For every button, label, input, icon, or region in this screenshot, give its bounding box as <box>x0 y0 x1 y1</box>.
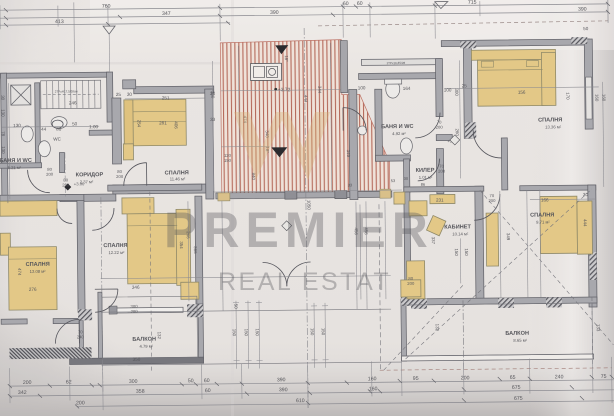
svg-text:200: 200 <box>23 380 32 386</box>
svg-text:260: 260 <box>455 128 460 136</box>
svg-text:1.00: 1.00 <box>89 124 98 129</box>
svg-text:200: 200 <box>62 182 70 187</box>
svg-text:200: 200 <box>438 169 446 174</box>
svg-text:33: 33 <box>210 117 216 122</box>
svg-text:150: 150 <box>224 158 232 163</box>
svg-text:150: 150 <box>464 248 469 256</box>
svg-text:КАБИНЕТ: КАБИНЕТ <box>444 224 471 230</box>
svg-text:REAL ESTAT: REAL ESTAT <box>218 268 391 296</box>
svg-text:9.71 м²: 9.71 м² <box>536 219 550 224</box>
svg-text:150: 150 <box>232 329 237 337</box>
svg-text:8.65 м²: 8.65 м² <box>513 338 527 343</box>
svg-text:132: 132 <box>435 324 440 332</box>
svg-text:160: 160 <box>594 94 599 102</box>
svg-text:300: 300 <box>129 379 138 385</box>
svg-text:276: 276 <box>29 287 37 292</box>
svg-text:62: 62 <box>66 379 72 385</box>
svg-text:25: 25 <box>116 92 122 97</box>
svg-text:344: 344 <box>317 86 322 94</box>
svg-text:50: 50 <box>583 26 589 31</box>
svg-text:246: 246 <box>69 100 77 105</box>
svg-text:150: 150 <box>454 248 459 256</box>
svg-text:11.46 м²: 11.46 м² <box>170 176 186 181</box>
svg-text:13.08 м²: 13.08 м² <box>30 269 47 274</box>
svg-text:133: 133 <box>596 324 601 332</box>
svg-text:25: 25 <box>462 83 468 88</box>
svg-text:1.01 м²: 1.01 м² <box>419 175 433 180</box>
svg-text:347: 347 <box>162 11 171 17</box>
svg-text:18°: 18° <box>284 55 289 62</box>
svg-text:200: 200 <box>461 375 470 381</box>
svg-text:150: 150 <box>321 328 326 336</box>
svg-text:44: 44 <box>41 127 47 132</box>
svg-text:240: 240 <box>555 374 564 380</box>
svg-text:251: 251 <box>162 95 170 100</box>
svg-text:150: 150 <box>255 329 260 337</box>
svg-text:30: 30 <box>0 95 5 100</box>
svg-text:200: 200 <box>488 198 496 203</box>
svg-text:390: 390 <box>270 10 279 16</box>
svg-text:300: 300 <box>210 91 215 99</box>
svg-text:150: 150 <box>310 328 315 336</box>
svg-text:254: 254 <box>137 120 142 128</box>
svg-text:390: 390 <box>578 7 587 13</box>
svg-text:350: 350 <box>133 357 141 362</box>
svg-text:358: 358 <box>136 389 145 395</box>
svg-text:675: 675 <box>514 396 523 402</box>
svg-text:80: 80 <box>56 127 62 132</box>
svg-text:4.92 м²: 4.92 м² <box>392 131 406 136</box>
svg-text:КОРИДОР: КОРИДОР <box>76 172 104 178</box>
svg-text:10.14 м²: 10.14 м² <box>452 231 469 236</box>
svg-text:100: 100 <box>358 85 366 90</box>
svg-text:342: 342 <box>18 390 27 396</box>
svg-text:444: 444 <box>303 95 308 103</box>
svg-text:СПАЛНЯ: СПАЛНЯ <box>538 117 562 123</box>
svg-text:474: 474 <box>17 268 22 276</box>
svg-text:30: 30 <box>583 192 589 197</box>
svg-text:КИЛЕР: КИЛЕР <box>416 168 435 174</box>
svg-text:1ТРх16,85/28: 1ТРх16,85/28 <box>386 61 405 65</box>
svg-text:60: 60 <box>343 1 349 7</box>
svg-text:12.22 м²: 12.22 м² <box>108 250 125 255</box>
svg-text:156: 156 <box>518 90 526 95</box>
svg-text:200: 200 <box>46 172 54 177</box>
svg-text:50: 50 <box>188 378 194 384</box>
svg-text:675: 675 <box>512 385 521 391</box>
svg-text:170: 170 <box>565 92 570 100</box>
svg-text:75: 75 <box>601 374 607 380</box>
svg-text:БАЛКОН: БАЛКОН <box>505 331 529 337</box>
svg-text:СПАЛНЯ: СПАЛНЯ <box>26 262 50 268</box>
svg-text:200: 200 <box>407 281 415 286</box>
svg-text:PREMIER: PREMIER <box>164 202 434 258</box>
svg-text:СПАЛНЯ: СПАЛНЯ <box>103 243 127 249</box>
svg-text:50: 50 <box>233 304 238 309</box>
svg-text:406: 406 <box>174 121 179 129</box>
svg-text:200: 200 <box>436 125 444 130</box>
svg-text:132: 132 <box>157 332 162 340</box>
svg-text:200: 200 <box>131 309 139 314</box>
svg-text:95: 95 <box>413 376 419 382</box>
svg-text:444: 444 <box>583 219 588 227</box>
svg-text:13.36 м²: 13.36 м² <box>545 124 562 129</box>
svg-text:130: 130 <box>0 109 5 117</box>
svg-text:349: 349 <box>506 233 511 241</box>
svg-text:+3.00: +3.00 <box>74 181 85 186</box>
svg-text:160: 160 <box>368 376 377 382</box>
svg-text:130: 130 <box>13 123 21 128</box>
svg-text:60: 60 <box>205 388 211 394</box>
svg-text:760: 760 <box>102 4 111 10</box>
svg-text:349: 349 <box>346 150 351 158</box>
svg-text:150: 150 <box>244 329 249 337</box>
svg-text:610: 610 <box>296 398 305 404</box>
svg-text:130: 130 <box>1 146 6 154</box>
svg-text:200: 200 <box>76 400 85 406</box>
svg-text:715: 715 <box>468 0 477 6</box>
svg-text:413: 413 <box>55 19 64 25</box>
svg-text:WC: WC <box>53 137 61 142</box>
svg-text:78: 78 <box>1 131 6 136</box>
svg-text:346: 346 <box>132 285 140 290</box>
svg-text:300: 300 <box>454 88 459 96</box>
svg-text:2ТРхН17,5/28см: 2ТРхН17,5/28см <box>55 89 78 93</box>
svg-text:231: 231 <box>436 198 444 203</box>
svg-text:БАЛКОН: БАЛКОН <box>132 337 156 343</box>
svg-text:5.21 м²: 5.21 м² <box>8 165 22 170</box>
svg-text:200: 200 <box>116 174 124 179</box>
svg-text:390: 390 <box>279 387 288 393</box>
svg-text:60: 60 <box>204 378 210 384</box>
svg-text:60: 60 <box>357 1 363 7</box>
svg-text:БАНЯ И WC: БАНЯ И WC <box>381 124 413 130</box>
svg-text:390: 390 <box>277 377 286 383</box>
svg-text:БАНЯ И WC: БАНЯ И WC <box>0 158 32 164</box>
svg-text:65: 65 <box>510 375 516 381</box>
svg-text:4.79 м²: 4.79 м² <box>139 344 153 349</box>
svg-text:50: 50 <box>72 121 78 126</box>
svg-text:100: 100 <box>444 87 452 92</box>
svg-text:СПАЛНЯ: СПАЛНЯ <box>530 212 554 218</box>
svg-text:281: 281 <box>159 120 167 125</box>
svg-text:240: 240 <box>77 334 85 339</box>
svg-text:30: 30 <box>127 92 133 97</box>
svg-text:166: 166 <box>541 197 549 202</box>
svg-text:164: 164 <box>403 86 411 91</box>
svg-text:160: 160 <box>601 94 606 102</box>
